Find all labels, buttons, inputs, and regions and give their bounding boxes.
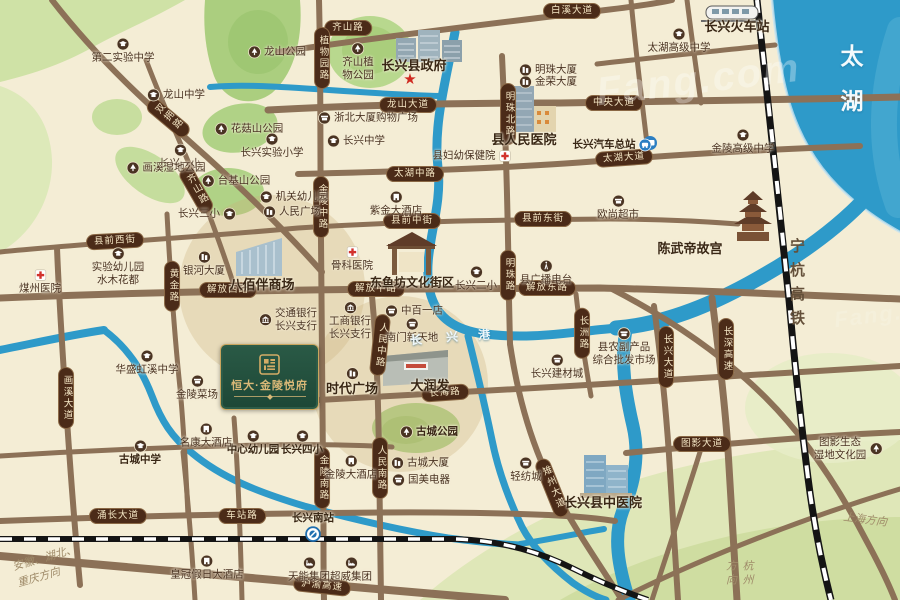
river-label-char: 港: [477, 326, 490, 344]
logo-title: 恒大·金陵悦府: [231, 377, 308, 393]
rt-mart-building: [383, 350, 448, 386]
map-canvas: 齐山路白溪大道双拥路齐山路龙山大道中央大道植物园路明珠北路太湖中路太湖大道金陵中…: [0, 0, 900, 600]
direction-note: 杭州方向: [722, 560, 755, 600]
bus-station-icon: [643, 136, 657, 150]
chenwudi-pagoda: [734, 191, 772, 241]
peoples-hospital-building: [508, 86, 556, 132]
logo-subtitle-ornament: [234, 396, 306, 400]
river-label-char: 兴: [445, 328, 458, 346]
ninghang-highspeed-rail-label: 宁杭高铁: [786, 238, 807, 334]
logo-seal-icon: [259, 354, 280, 375]
government-star-icon: ★: [403, 70, 416, 88]
train-icon: [701, 6, 763, 22]
river-label-char: 长: [409, 331, 422, 349]
project-logo-evergrande-jinling: 恒大·金陵悦府: [220, 344, 319, 410]
tcm-hospital-building: [580, 455, 632, 498]
tai-lake-label: 太湖: [833, 44, 867, 134]
